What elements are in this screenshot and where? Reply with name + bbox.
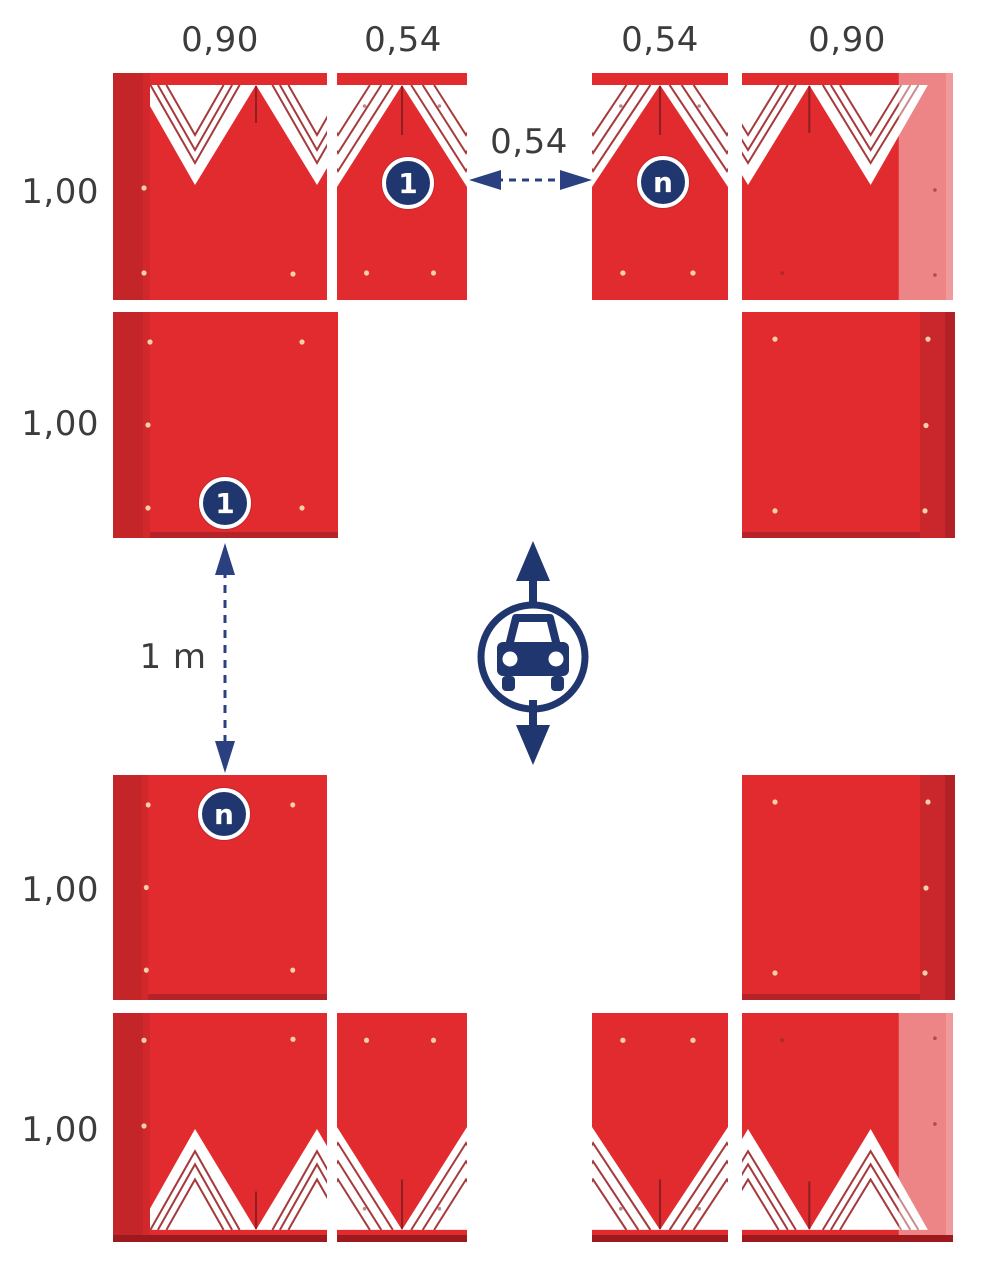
width-label-col4: 0,90 — [747, 20, 947, 60]
height-label-row3: 1,00 — [15, 870, 99, 910]
up-arrow-icon — [516, 541, 550, 608]
panel-top-090-right — [742, 73, 953, 300]
panel-row2-right — [742, 312, 955, 538]
vehicle-direction-icon — [473, 534, 593, 772]
marker-first-left: 1 — [199, 477, 251, 529]
marker-first-top: 1 — [382, 157, 434, 209]
panel-base-strip — [113, 1235, 327, 1242]
marker-nth-left: n — [198, 788, 250, 840]
panel-base-strip — [742, 1235, 953, 1242]
panel-bottom-054-nth — [592, 1013, 728, 1242]
panel-bottom-090-right — [742, 1013, 953, 1242]
gap-dimension-arrow-icon — [468, 166, 593, 194]
marker-nth-top: n — [637, 156, 689, 208]
panel-base-strip — [592, 1235, 728, 1242]
height-label-row1: 1,00 — [15, 172, 99, 212]
row-spacing-arrow-icon — [211, 542, 239, 774]
panel-base-strip — [337, 1235, 467, 1242]
panel-bottom-054-first — [337, 1013, 467, 1242]
height-label-row4: 1,00 — [15, 1110, 99, 1150]
width-label-col3: 0,54 — [560, 20, 760, 60]
panel-bottom-090-left — [113, 1013, 327, 1242]
width-label-col1: 0,90 — [120, 20, 320, 60]
width-label-col2: 0,54 — [303, 20, 503, 60]
height-label-row2: 1,00 — [15, 404, 99, 444]
panel-top-090-left — [113, 73, 327, 300]
panel-row3-right — [742, 775, 955, 1000]
row-spacing-label: 1 m — [128, 637, 218, 677]
gap-dimension-label: 0,54 — [466, 122, 592, 162]
traffic-panel-spacing-diagram: 0,90 0,54 0,54 0,90 1,00 1,00 1,00 1,00 — [0, 0, 990, 1272]
